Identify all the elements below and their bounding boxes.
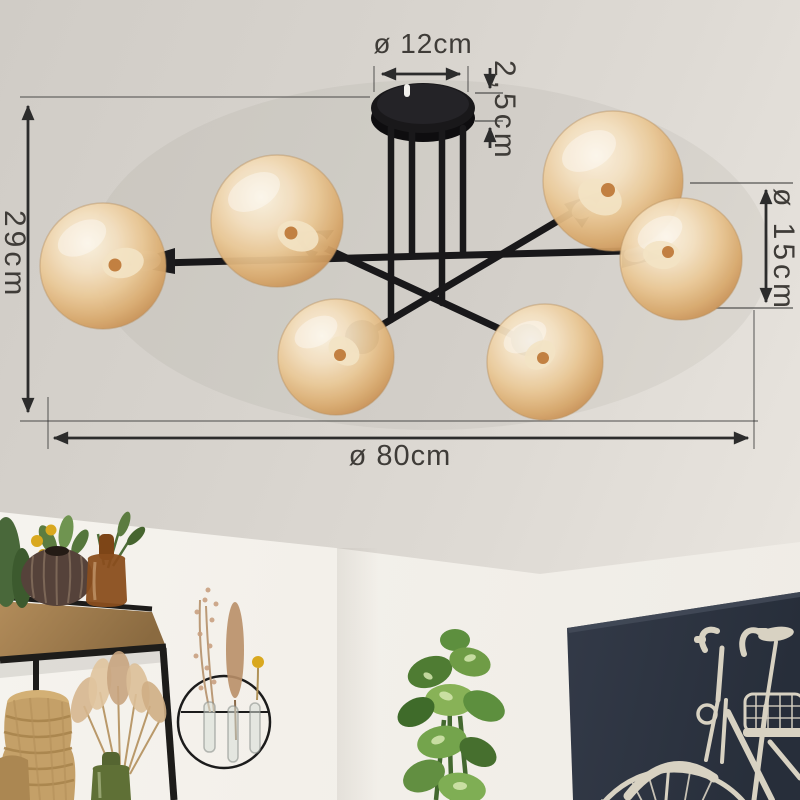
glass-test-tubes <box>204 702 260 762</box>
scene-graphic <box>0 0 800 800</box>
dimension-label-canopy-diameter: ø 12cm <box>368 28 478 60</box>
craspedia-flower <box>252 656 264 668</box>
craspedia-flower <box>31 535 43 547</box>
dimension-label-fixture-diameter: ø 80cm <box>340 440 460 473</box>
bicycle-canvas <box>567 592 800 800</box>
dimension-label-canopy-height: 2,5cm <box>487 60 521 162</box>
craspedia-flower <box>46 525 57 536</box>
lamp-canopy <box>371 83 475 142</box>
bronze-ribbed-vase <box>21 546 93 606</box>
wicker-baskets <box>0 690 75 800</box>
shelf-decor <box>0 510 148 608</box>
glass-globe <box>620 198 742 320</box>
dimension-label-fixture-height: 29cm <box>0 210 31 299</box>
dried-plume <box>226 602 244 698</box>
wall-ring-vase <box>178 588 270 769</box>
canopy-highlight <box>404 84 410 97</box>
product-dimension-photo: ø 12cm 2,5cm 29cm ø 15cm ø 80cm <box>0 0 800 800</box>
glass-globe <box>211 155 343 287</box>
shelf-leg <box>163 648 174 800</box>
amber-glass-bottle <box>86 534 127 607</box>
monstera-plant <box>392 629 510 800</box>
dimension-label-globe-diameter: ø 15cm <box>766 188 800 312</box>
wicker-basket-small <box>0 755 30 800</box>
pampas-grass <box>65 651 171 800</box>
